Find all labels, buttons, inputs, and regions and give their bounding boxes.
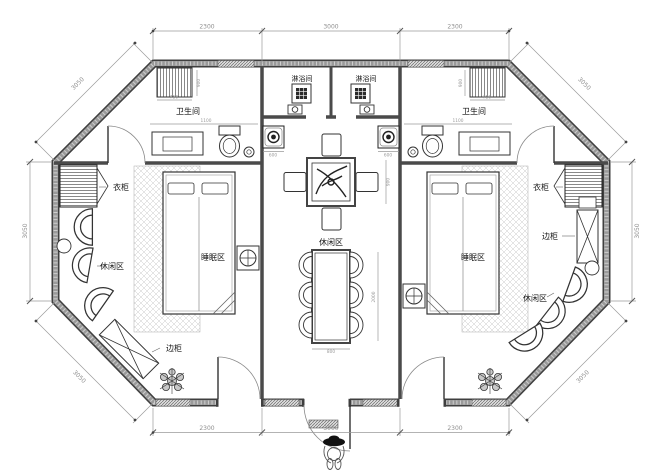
shower-drain	[292, 84, 311, 103]
shelf	[579, 197, 596, 208]
dim-top-center: 3000	[323, 24, 338, 31]
label-right-lounge-area: 休闲区	[523, 293, 547, 303]
dim-tea-table: 900	[386, 178, 392, 186]
dim-left-side: 3050	[22, 223, 29, 238]
dim-bottom-left: 2300	[199, 425, 214, 432]
dim-right-side: 3050	[634, 223, 641, 238]
dim-rack-width: 750	[170, 95, 178, 101]
label-right-side-cabinet: 边柜	[542, 231, 558, 241]
stool	[322, 134, 341, 156]
wardrobe	[60, 165, 97, 207]
dining-chair	[299, 252, 312, 278]
dim-basin: 600	[269, 153, 277, 159]
wardrobe-bracket	[554, 168, 565, 204]
floor-plan-svg: 2300 3000 2300 2300 3000 2300 3050 3050 …	[0, 0, 651, 473]
bedroom-door-arc	[402, 357, 444, 399]
floor-plan-canvas: 2300 3000 2300 2300 3000 2300 3050 3050 …	[0, 0, 651, 473]
dim-dining-width: 800	[327, 349, 335, 355]
dining-chair	[299, 312, 312, 338]
stool	[356, 173, 378, 192]
bedside-table	[403, 284, 425, 308]
towel-rack	[470, 68, 505, 97]
dim-top-left: 2300	[199, 24, 214, 31]
bedside-table	[237, 246, 259, 270]
lounge-chair	[78, 280, 114, 320]
label-right-sleep-area: 睡眠区	[461, 253, 485, 262]
dim-bottom-center: 3000	[323, 425, 338, 432]
dim-bath-width: 1100	[201, 118, 212, 124]
room-label-left-bathroom: 卫生间	[176, 106, 200, 116]
pillow	[202, 183, 228, 194]
dim-basin: 600	[384, 153, 392, 159]
pillow	[432, 183, 458, 194]
plant	[478, 368, 502, 394]
label-right-wardrobe: 衣柜	[533, 182, 549, 192]
label-hall-lounge-area: 休闲区	[319, 237, 343, 247]
label-left-sleep-area: 睡眠区	[201, 253, 225, 262]
lounge-chair	[74, 209, 92, 245]
dim-diagonal-top-right: 3050	[576, 76, 592, 92]
dim-bath-width: 1100	[453, 118, 464, 124]
hall	[263, 126, 399, 470]
room-label-right-shower: 淋浴间	[356, 74, 377, 83]
bathroom-door-arc	[517, 126, 554, 163]
left-bedroom	[57, 165, 260, 399]
dining-chair	[350, 282, 363, 308]
stool	[284, 173, 306, 192]
dim-rack-height: 900	[196, 79, 202, 87]
lounge-chair	[70, 245, 93, 283]
right-bedroom	[402, 165, 602, 399]
side-cabinet	[577, 210, 598, 263]
washbasin	[263, 126, 284, 148]
vanity-sink	[470, 137, 499, 151]
dim-dining-length: 2000	[371, 291, 377, 302]
bathroom-door-arc	[108, 126, 145, 163]
label-left-lounge-area: 休闲区	[100, 261, 124, 271]
small-sink	[360, 105, 374, 114]
plant	[160, 368, 184, 394]
dim-diagonal-top-left: 3050	[70, 76, 86, 92]
dim-top-right: 2300	[447, 24, 462, 31]
side-table	[57, 239, 71, 253]
toilet	[219, 126, 240, 157]
dim-rack-width: 750	[483, 95, 491, 101]
dim-diagonal-bottom-right: 3050	[575, 369, 591, 385]
toilet	[422, 126, 443, 157]
dining-chair	[350, 252, 363, 278]
dining-chair	[299, 282, 312, 308]
dim-bottom-right: 2300	[447, 425, 462, 432]
room-label-left-shower: 淋浴间	[292, 74, 313, 83]
side-table	[585, 261, 599, 275]
dim-diagonal-bottom-left: 3050	[71, 369, 87, 385]
stool	[322, 208, 341, 230]
wardrobe-bracket	[97, 168, 108, 204]
pillow	[466, 183, 492, 194]
dim-rack-height: 900	[458, 79, 464, 87]
shower-drain	[351, 84, 370, 103]
dining-chair	[350, 312, 363, 338]
small-sink	[288, 105, 302, 114]
pillow	[168, 183, 194, 194]
washbasin	[378, 126, 399, 148]
room-label-right-bathroom: 卫生间	[462, 106, 486, 116]
towel-rack	[157, 68, 192, 97]
person-figure	[323, 436, 345, 470]
vanity-sink	[163, 137, 192, 151]
wall-openings	[216, 398, 446, 408]
label-left-wardrobe: 衣柜	[113, 182, 129, 192]
bedroom-door-arc	[218, 357, 260, 399]
label-left-side-cabinet: 边柜	[166, 343, 182, 353]
